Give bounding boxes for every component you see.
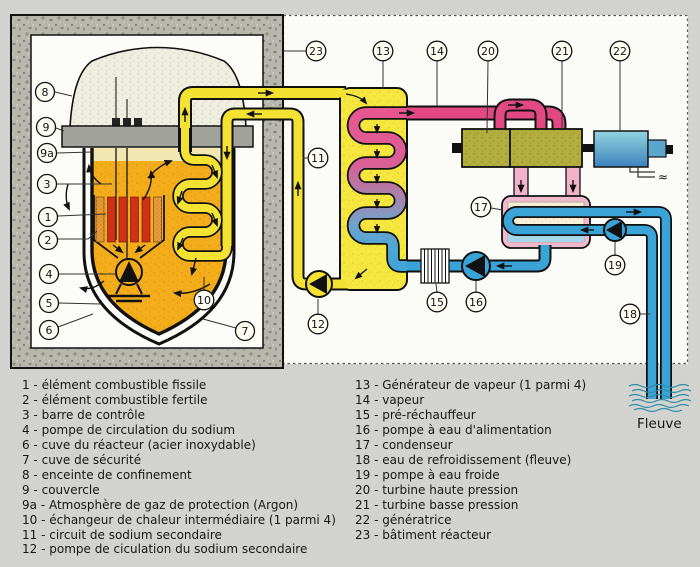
pipe-junction bbox=[337, 280, 346, 289]
legend-item: 14 - vapeur bbox=[355, 393, 586, 408]
svg-text:2: 2 bbox=[45, 234, 52, 247]
electrical-output-symbol: ≈ bbox=[658, 170, 668, 184]
hp-turbine bbox=[462, 129, 510, 167]
legend-item: 17 - condenseur bbox=[355, 438, 586, 453]
callout-5: 5 bbox=[40, 294, 59, 313]
callout-19: 19 bbox=[605, 255, 625, 275]
legend-item: 22 - génératrice bbox=[355, 513, 586, 528]
fissile-element bbox=[119, 197, 127, 242]
legend-item: 3 - barre de contrôle bbox=[22, 408, 336, 423]
svg-text:9a: 9a bbox=[40, 147, 54, 160]
callout-9a: 9a bbox=[38, 144, 57, 163]
legend-item: 2 - élément combustible fertile bbox=[22, 393, 336, 408]
fissile-element bbox=[108, 197, 116, 242]
legend-item: 20 - turbine haute pression bbox=[355, 483, 586, 498]
callout-9: 9 bbox=[37, 118, 56, 137]
callout-23: 23 bbox=[306, 41, 326, 61]
legend-item: 8 - enceinte de confinement bbox=[22, 468, 336, 483]
callout-16: 16 bbox=[466, 292, 486, 312]
legend-item: 7 - cuve de sécurité bbox=[22, 453, 336, 468]
callout-13: 13 bbox=[373, 41, 393, 61]
fissile-element bbox=[131, 197, 139, 242]
legend-left-column: 1 - élément combustible fissile 2 - élém… bbox=[22, 378, 336, 557]
svg-text:14: 14 bbox=[430, 45, 444, 58]
svg-text:20: 20 bbox=[481, 45, 495, 58]
callout-4: 4 bbox=[40, 265, 59, 284]
svg-text:16: 16 bbox=[469, 296, 483, 309]
pre-heater bbox=[421, 249, 449, 283]
svg-text:13: 13 bbox=[376, 45, 390, 58]
river-label: Fleuve bbox=[637, 416, 682, 432]
sg-water-coil bbox=[354, 113, 408, 266]
condenser bbox=[502, 196, 590, 248]
secondary-sodium-pump bbox=[306, 271, 332, 297]
legend-item: 13 - Générateur de vapeur (1 parmi 4) bbox=[355, 378, 586, 393]
svg-text:15: 15 bbox=[430, 296, 444, 309]
svg-text:11: 11 bbox=[311, 152, 325, 165]
pipe-junction bbox=[337, 90, 346, 98]
callout-12: 12 bbox=[308, 314, 328, 334]
legend-item: 9a - Atmosphère de gaz de protection (Ar… bbox=[22, 498, 336, 513]
legend-item: 1 - élément combustible fissile bbox=[22, 378, 336, 393]
callout-17: 17 bbox=[471, 197, 491, 217]
svg-text:4: 4 bbox=[46, 268, 53, 281]
svg-text:3: 3 bbox=[44, 178, 51, 191]
legend-item: 10 - échangeur de chaleur intermédiaire … bbox=[22, 513, 336, 528]
callout-20: 20 bbox=[478, 41, 498, 61]
callout-10: 10 bbox=[194, 290, 214, 310]
svg-text:12: 12 bbox=[311, 318, 325, 331]
svg-text:18: 18 bbox=[623, 308, 637, 321]
legend-item: 12 - pompe de ciculation du sodium secon… bbox=[22, 542, 336, 557]
callout-2: 2 bbox=[39, 231, 58, 250]
callout-8: 8 bbox=[36, 83, 55, 102]
callout-11: 11 bbox=[308, 148, 328, 168]
fertile-element bbox=[154, 197, 162, 242]
svg-text:7: 7 bbox=[242, 325, 249, 338]
cold-water-pump bbox=[604, 219, 626, 241]
legend-item: 21 - turbine basse pression bbox=[355, 498, 586, 513]
callout-21: 21 bbox=[552, 41, 572, 61]
legend-item: 4 - pompe de circulation du sodium bbox=[22, 423, 336, 438]
callout-14: 14 bbox=[427, 41, 447, 61]
feedwater-pump bbox=[462, 252, 490, 280]
svg-text:23: 23 bbox=[309, 45, 323, 58]
svg-text:6: 6 bbox=[46, 324, 53, 337]
svg-text:19: 19 bbox=[608, 259, 622, 272]
svg-text:1: 1 bbox=[45, 211, 52, 224]
svg-text:5: 5 bbox=[46, 297, 53, 310]
legend-item: 15 - pré-réchauffeur bbox=[355, 408, 586, 423]
legend-item: 16 - pompe à eau d'alimentation bbox=[355, 423, 586, 438]
generator-shaft bbox=[648, 140, 666, 157]
svg-text:17: 17 bbox=[474, 201, 488, 214]
legend-right-column: 13 - Générateur de vapeur (1 parmi 4) 14… bbox=[355, 378, 586, 542]
legend-item: 9 - couvercle bbox=[22, 483, 336, 498]
legend-item: 11 - circuit de sodium secondaire bbox=[22, 528, 336, 543]
legend-item: 6 - cuve du réacteur (acier inoxydable) bbox=[22, 438, 336, 453]
generator bbox=[594, 131, 648, 167]
callout-1: 1 bbox=[39, 208, 58, 227]
legend-item: 18 - eau de refroidissement (fleuve) bbox=[355, 453, 586, 468]
lp-turbine bbox=[510, 129, 582, 167]
callout-15: 15 bbox=[427, 292, 447, 312]
svg-text:10: 10 bbox=[197, 294, 211, 307]
legend-item: 23 - bâtiment réacteur bbox=[355, 528, 586, 543]
callout-3: 3 bbox=[38, 175, 57, 194]
svg-text:21: 21 bbox=[555, 45, 569, 58]
reactor-schematic-page: ≈ Fleuve bbox=[0, 0, 700, 567]
legend-item: 19 - pompe à eau froide bbox=[355, 468, 586, 483]
callout-18: 18 bbox=[620, 304, 640, 324]
svg-text:9: 9 bbox=[43, 121, 50, 134]
callout-22: 22 bbox=[610, 41, 630, 61]
svg-text:8: 8 bbox=[42, 86, 49, 99]
svg-text:22: 22 bbox=[613, 45, 627, 58]
fertile-element bbox=[96, 197, 104, 242]
callout-7: 7 bbox=[236, 322, 255, 341]
callout-6: 6 bbox=[40, 321, 59, 340]
fissile-element bbox=[142, 197, 150, 242]
